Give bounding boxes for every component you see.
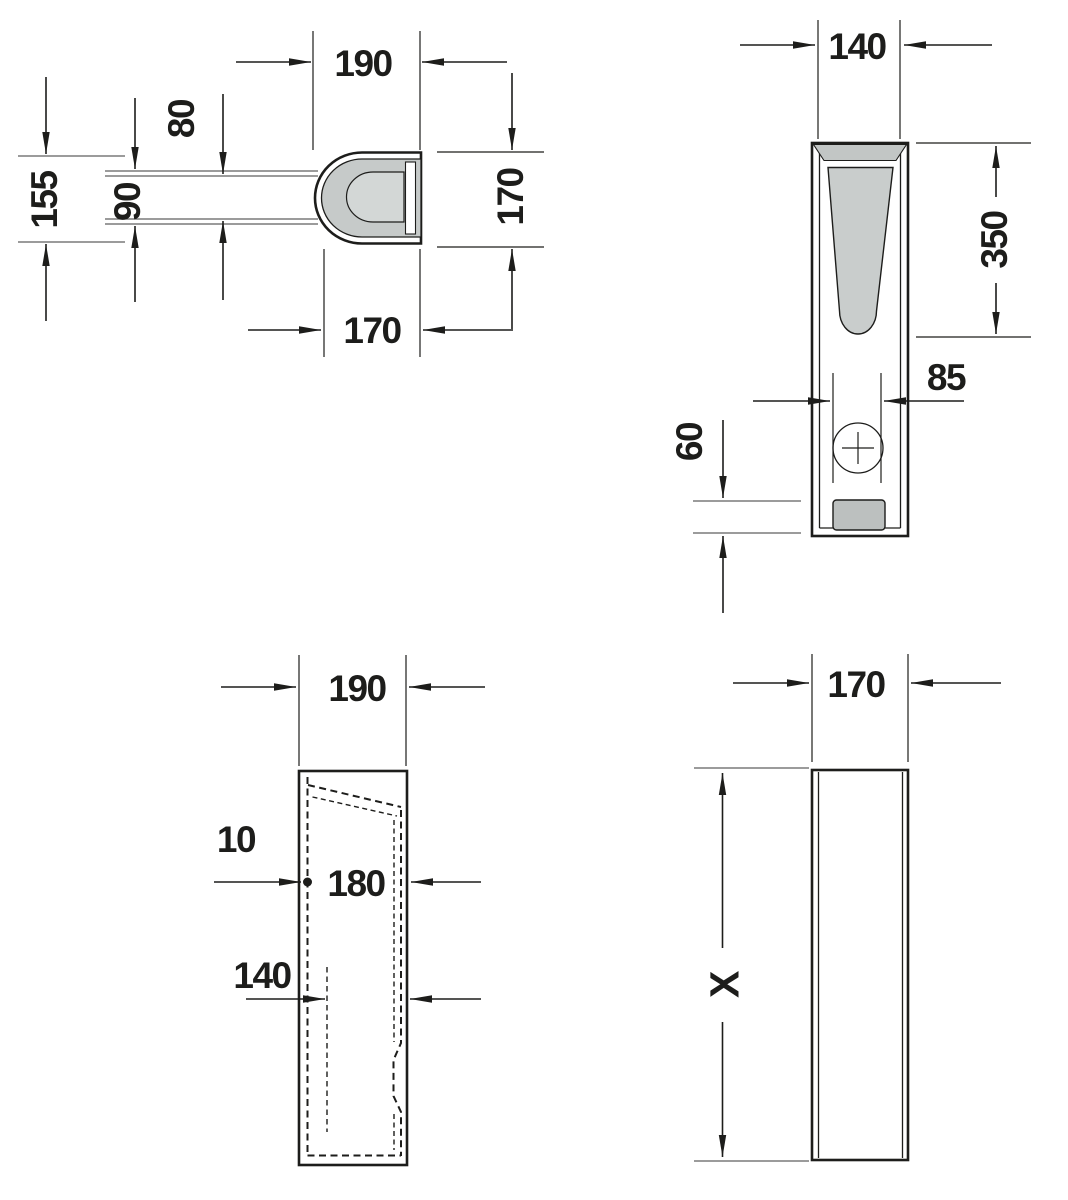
front-outlet-opening	[833, 500, 885, 530]
plan-dim-80: 80	[161, 94, 223, 300]
side-view: 190 10 180 140	[214, 655, 485, 1165]
back-body-outline	[812, 770, 908, 1160]
technical-drawing-page: 190 80 90 155 170	[0, 0, 1068, 1200]
back-dim-170: 170	[733, 654, 1001, 762]
side-body-outline	[299, 771, 407, 1165]
plan-dim-170-right: 170	[437, 73, 544, 329]
side-dim-10-label: 10	[217, 819, 256, 860]
side-dim-180-label: 180	[327, 863, 385, 904]
side-dim-140-label: 140	[233, 955, 291, 996]
front-rim-band	[814, 145, 907, 161]
side-dim-190: 190	[221, 655, 485, 766]
front-dim-140: 140	[740, 20, 992, 139]
plan-dim-170-bottom: 170	[248, 249, 513, 357]
back-view: 170 X	[694, 654, 1001, 1161]
plan-dim-80-label: 80	[161, 99, 202, 138]
plan-dim-90-label: 90	[107, 182, 148, 221]
front-dim-140-label: 140	[828, 26, 886, 67]
plan-dim-190: 190	[236, 31, 507, 150]
plan-dim-170-bottom-label: 170	[343, 310, 401, 351]
front-dim-350-label: 350	[974, 210, 1015, 268]
side-dim-190-label: 190	[328, 668, 386, 709]
plan-dim-90: 90	[107, 98, 148, 302]
back-dim-x-label: X	[701, 971, 747, 998]
front-dim-85-label: 85	[927, 357, 966, 398]
siphon-cover-recess	[347, 172, 405, 222]
plan-view: 190 80 90 155 170	[18, 31, 544, 357]
back-dim-170-label: 170	[827, 664, 885, 705]
front-dim-60-label: 60	[669, 422, 710, 461]
fixing-hole-icon	[833, 423, 883, 473]
back-dim-x: X	[694, 768, 809, 1161]
front-dim-60: 60	[669, 420, 801, 613]
plan-dim-190-label: 190	[334, 43, 392, 84]
dimension-drawing: 190 80 90 155 170	[0, 0, 1068, 1200]
plan-dim-155-label: 155	[24, 170, 65, 228]
front-dim-350: 350	[916, 143, 1031, 337]
side-dim-reference-dot	[303, 878, 312, 887]
side-dim-10: 10	[214, 819, 312, 887]
front-view: 140 350 85 60	[669, 20, 1031, 613]
siphon-cover-back-strip	[406, 162, 416, 234]
plan-dim-170-right-label: 170	[490, 167, 531, 225]
